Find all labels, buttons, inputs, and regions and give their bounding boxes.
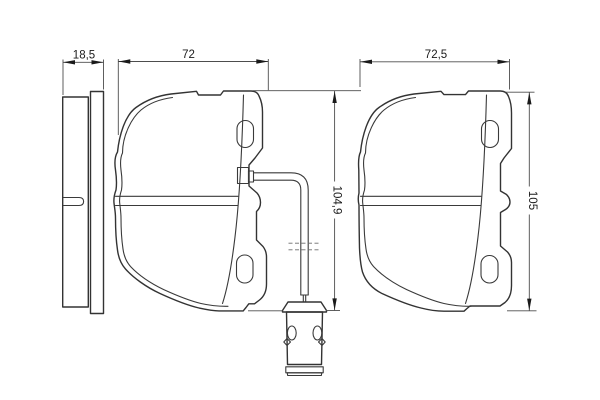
right-pad-hole-top [482,121,499,148]
connector-bottom-band [286,367,323,373]
dimension-side-view-thickness: 18,5 [63,50,104,96]
arrowhead-left [118,59,130,63]
sensor-seat [238,168,249,184]
arrowhead-up [332,91,336,103]
arrowhead-left [360,60,372,64]
right-pad-outline [358,91,511,311]
right-pad-inner-contour [363,98,471,307]
side-view-backing-plate [91,92,104,314]
left-pad-front-view [114,91,267,311]
dimensions: 18,5 72 72,5 [63,49,541,311]
dimension-label: 72,5 [425,49,447,61]
left-pad-inner-contour [120,98,228,307]
right-pad-hole-bottom [481,256,498,284]
right-pad-friction-edge [466,95,487,304]
connector-bottom-cap [287,373,322,376]
dimension-label: 104,9 [331,186,343,215]
connector-slot-right [313,326,322,340]
wear-sensor [238,168,327,376]
brake-pad-technical-drawing: 18,5 72 72,5 [0,0,600,400]
dimension-left-pad-height: 104,9 [248,91,361,311]
arrowhead-down [527,299,531,311]
side-view [63,92,104,314]
drawing-canvas: 18,5 72 72,5 [0,0,600,400]
dimension-label: 105 [526,191,538,210]
arrowhead-right [256,59,268,63]
left-pad-hole-bottom [237,255,254,283]
dimension-label: 18,5 [73,50,95,62]
connector-body [287,312,323,365]
arrowhead-down [332,298,336,310]
connector-slot-left [287,326,296,340]
dimension-right-pad-width: 72,5 [360,49,510,90]
side-view-friction-material [63,97,89,307]
left-pad-hole-top [237,121,254,148]
sensor-wire-outer [254,173,309,295]
sensor-wire-inner [254,180,301,295]
left-pad-outline [114,91,267,311]
side-view-slot [63,198,83,206]
left-pad-friction-edge [223,95,244,304]
connector-flange [283,302,327,312]
right-pad-front-view [358,91,511,311]
arrowhead-up [527,92,531,104]
arrowhead-right [498,60,510,64]
dimension-label: 72 [182,49,195,61]
